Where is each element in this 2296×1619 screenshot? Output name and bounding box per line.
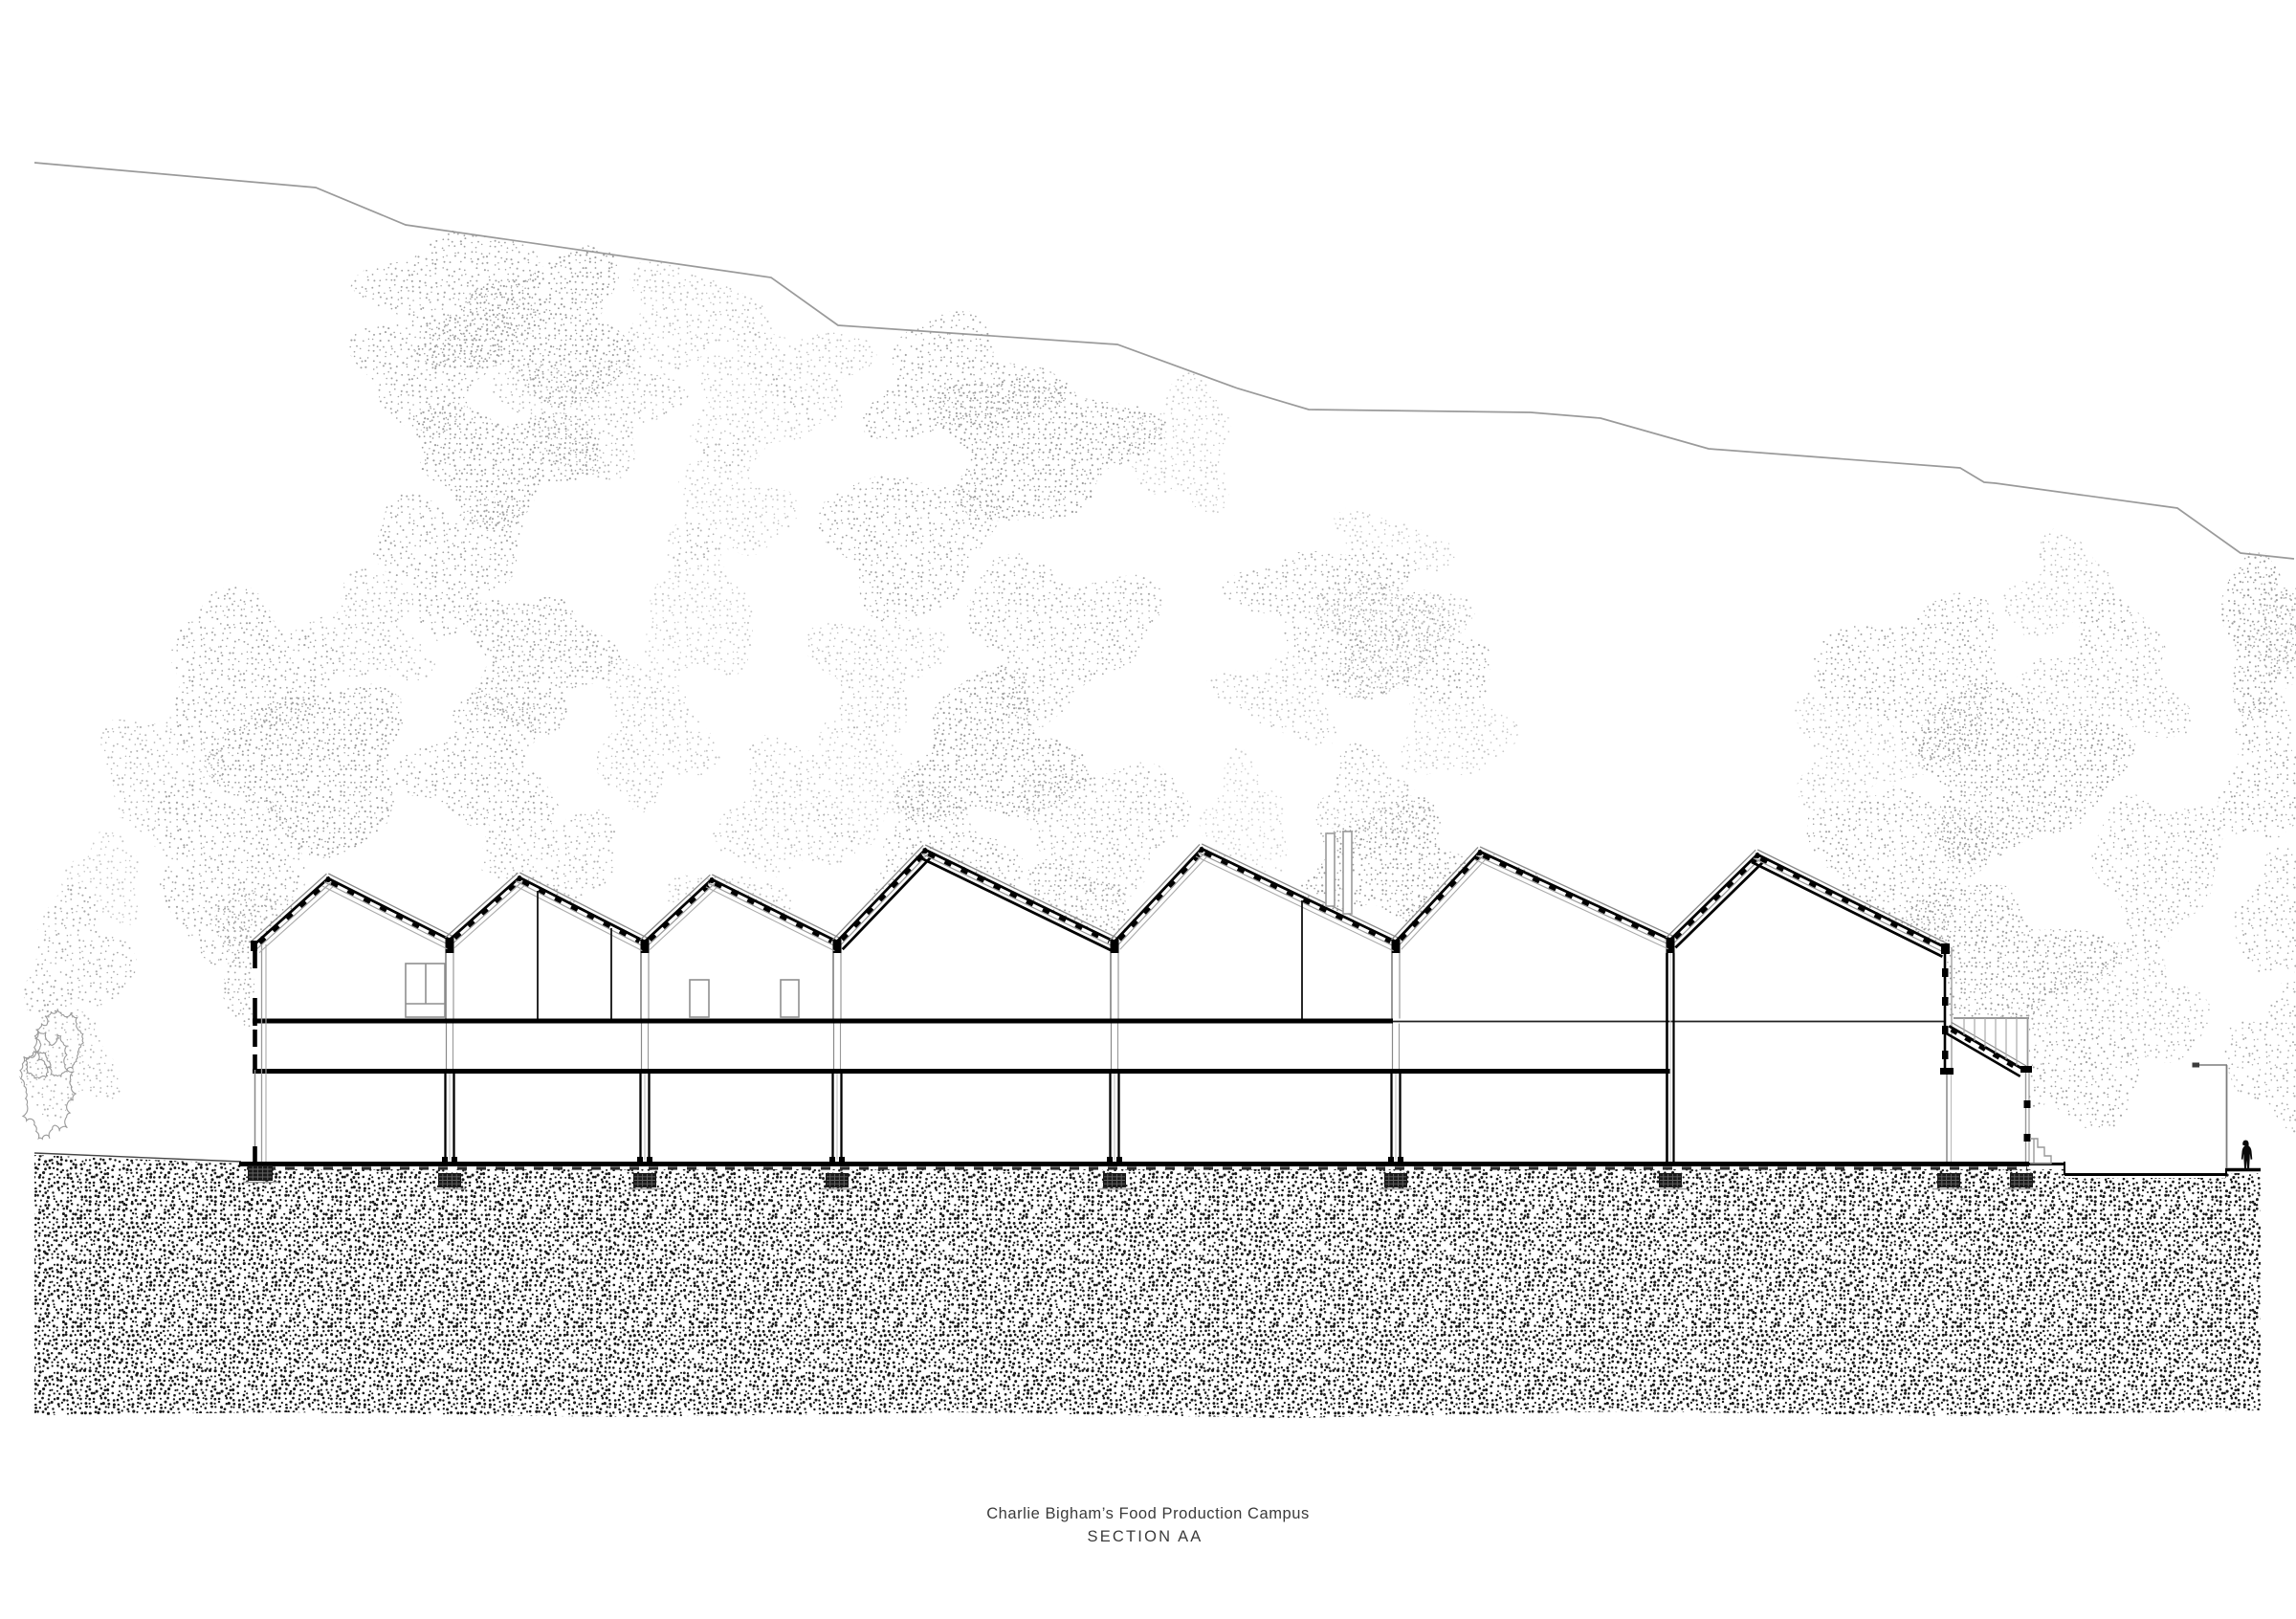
svg-text:SECTION AA: SECTION AA xyxy=(1087,1528,1203,1545)
svg-text:Charlie Bigham’s Food Producti: Charlie Bigham’s Food Production Campus xyxy=(986,1505,1310,1522)
